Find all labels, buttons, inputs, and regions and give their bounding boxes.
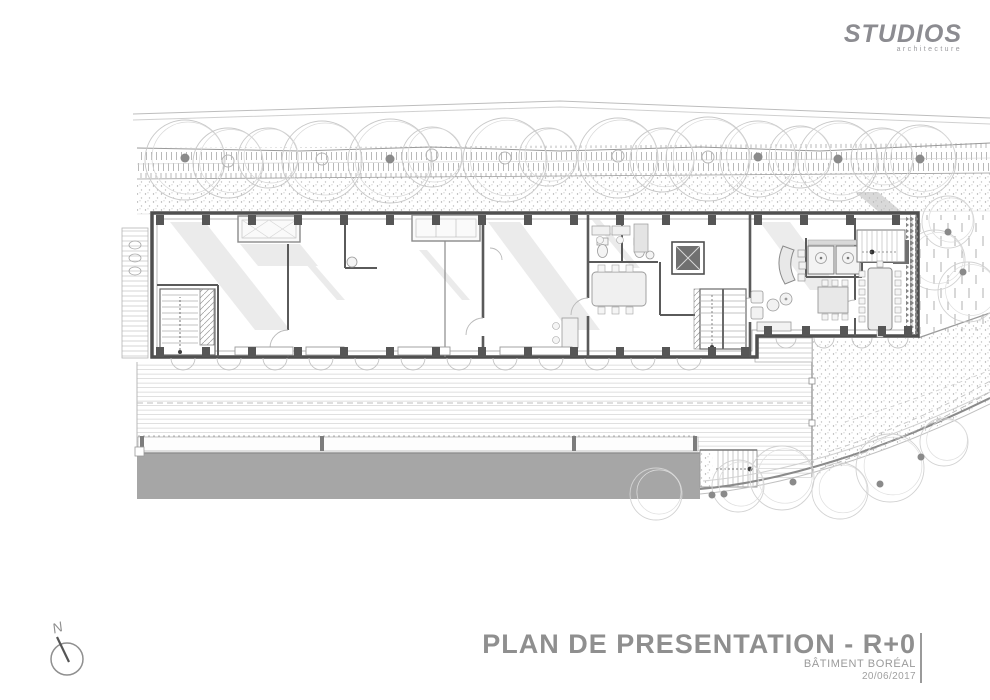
conference-room [857,230,905,337]
window-niche-1 [238,216,300,242]
retaining-wall [137,453,700,499]
studio-logo: STUDIOS architecture [844,22,962,53]
hedge-band [137,143,990,179]
green-wall-east [906,215,918,334]
title-divider [920,633,922,683]
stair-west [160,289,215,355]
meeting-table-small [818,280,848,320]
window-niche-2 [412,215,480,241]
planting-bed-east [920,215,985,334]
entrance-porch-steps [755,338,812,362]
planter-strip [138,437,698,451]
sheet-subtitle: BÂTIMENT BORÉAL [482,658,916,671]
building [122,213,918,370]
elevator [672,242,704,274]
north-arrow: N [50,618,83,675]
studio-logo-name: STUDIOS [844,22,962,46]
bike-parking [122,228,148,358]
stair-central [694,289,746,349]
sheet-date: 20/06/2017 [482,671,916,683]
title-block: PLAN DE PRESENTATION - R+0 BÂTIMENT BORÉ… [482,630,916,683]
north-label: N [50,618,65,637]
sheet-title: PLAN DE PRESENTATION - R+0 [482,630,916,658]
south-cabinets [235,347,572,355]
conference-table [868,268,892,330]
north-needle [57,637,69,662]
site-plan: N [0,0,990,700]
terrace-deck [135,362,812,499]
drawing-sheet: N STUDIOS architecture PLAN DE PRESENTAT… [0,0,990,700]
